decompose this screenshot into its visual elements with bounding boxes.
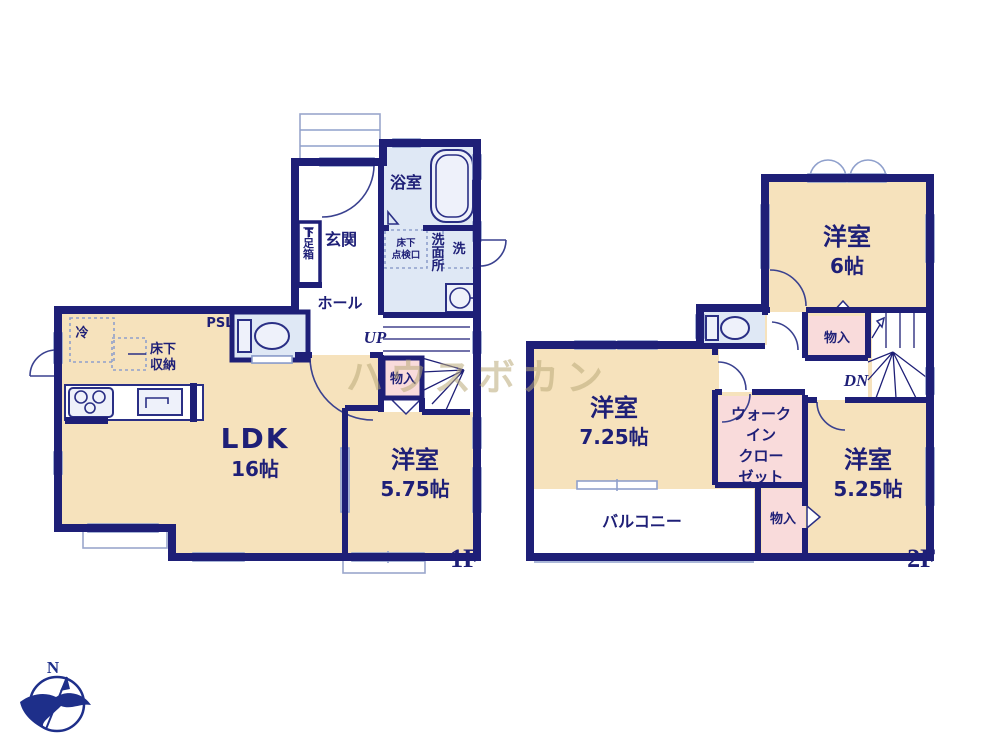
label-wic-2: イン xyxy=(746,426,776,444)
label-dn: DN xyxy=(843,371,869,390)
label-balcony: バルコニー xyxy=(602,512,682,531)
toilet-icon xyxy=(238,320,289,352)
label-bath: 浴室 xyxy=(390,173,422,192)
label-wic-1: ウォーク xyxy=(731,405,791,423)
label-closet-lower: 物入 xyxy=(770,511,796,527)
label-floor-2f: 2F xyxy=(907,544,936,573)
label-underfloor-1: 床下 xyxy=(150,341,176,357)
kitchen-back-door-swing xyxy=(30,350,56,376)
label-bedroom525: 洋室 xyxy=(844,446,892,474)
label-bedroom6: 洋室 xyxy=(823,223,871,251)
label-floor-1f: 1F xyxy=(450,544,479,573)
label-wic-4: ゼット xyxy=(738,468,783,486)
terrace-step xyxy=(83,531,167,548)
entrance-porch-steps xyxy=(300,114,380,162)
floor-plan-canvas: LDK 16帖 洋室 5.75帖 玄関 ホール 浴室 洗面所 洗 床下 点検口 … xyxy=(0,0,1000,750)
hall-2f-floor xyxy=(719,345,805,392)
label-bedroom525-size: 5.25帖 xyxy=(833,477,902,501)
washroom-back-door-swing xyxy=(480,240,506,266)
floor-plan-image: LDK 16帖 洋室 5.75帖 玄関 ホール 浴室 洗面所 洗 床下 点検口 … xyxy=(0,0,1000,750)
label-hall: ホール xyxy=(317,294,362,312)
label-closet-upper: 物入 xyxy=(824,330,850,346)
label-inspection-2: 点検口 xyxy=(392,249,421,261)
label-wic-3: クロー xyxy=(738,447,783,465)
label-bedroom6-size: 6帖 xyxy=(830,254,864,278)
bathtub-icon xyxy=(431,150,473,222)
watermark-text: ハウスボカン xyxy=(346,356,610,399)
label-bedroom-575: 洋室 xyxy=(391,446,439,474)
kitchen-counter-icon xyxy=(65,383,203,424)
label-shoe-box: 下足箱 xyxy=(302,226,315,260)
label-entrance: 玄関 xyxy=(325,230,357,249)
label-ldk: LDK xyxy=(221,422,290,455)
compass-icon: N xyxy=(20,658,91,731)
label-washer: 洗 xyxy=(452,241,465,257)
label-inspection-1: 床下 xyxy=(396,237,416,249)
label-washroom: 洗面所 xyxy=(429,232,445,273)
sink-icon xyxy=(138,389,182,415)
label-fridge: 冷 xyxy=(75,325,88,341)
label-up: UP xyxy=(364,328,387,347)
floorplan-1f: LDK 16帖 洋室 5.75帖 玄関 ホール 浴室 洗面所 洗 床下 点検口 … xyxy=(30,114,506,573)
label-pipe-space: PSL xyxy=(206,316,233,331)
vanity-sink-icon xyxy=(446,284,476,312)
label-underfloor-2: 収納 xyxy=(150,357,176,373)
compass-north-label: N xyxy=(47,658,60,677)
label-ldk-size: 16帖 xyxy=(231,457,279,481)
compass-land-shape xyxy=(20,693,91,729)
toilet-icon xyxy=(706,316,749,340)
label-bedroom-575-size: 5.75帖 xyxy=(380,477,449,501)
label-bedroom725-size: 7.25帖 xyxy=(579,425,648,449)
